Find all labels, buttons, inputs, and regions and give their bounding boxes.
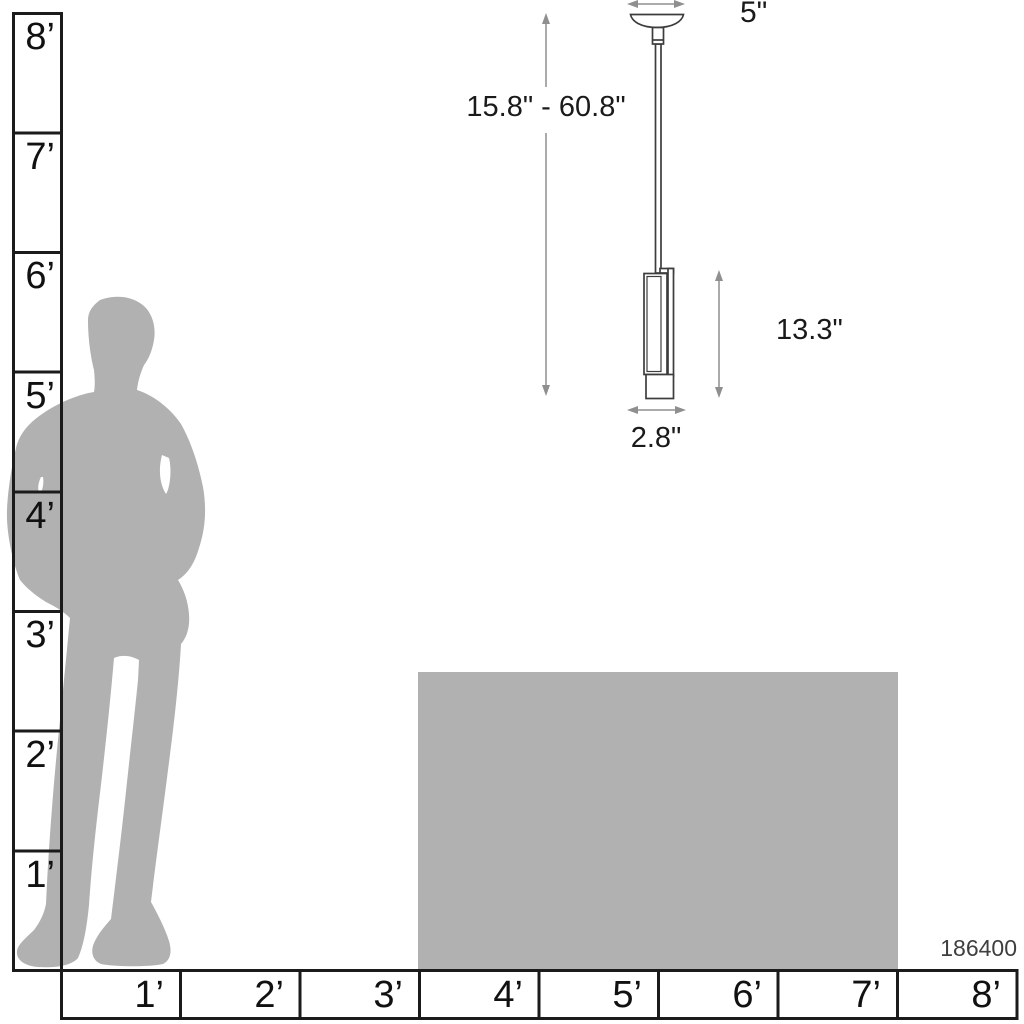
horizontal-ruler-label-6ft: 6’ [659,971,778,1019]
arrowhead [715,387,723,398]
product-model-number: 186400 [897,936,1017,961]
arrowhead [627,0,638,8]
scale-diagram: 8’ 7’ 6’ 5’ 4’ 3’ 2’ 1’ 1’ 2’ 3’ 4’ 5’ 6… [0,0,1024,1024]
pendant-bracket-strip [668,269,674,377]
horizontal-ruler-label-8ft: 8’ [898,971,1017,1019]
height-range-label: 15.8" - 60.8" [426,92,666,124]
dimension-arrows [546,4,719,410]
pendant-rod [656,44,662,273]
pendant-lower-shade [646,375,674,399]
fixture-height-label: 13.3" [776,315,843,347]
vertical-ruler-label-6ft: 6’ [13,257,55,295]
pendant-fixture [631,15,684,399]
horizontal-ruler-label-3ft: 3’ [300,971,419,1019]
pendant-stem [653,28,664,45]
vertical-ruler-label-5ft: 5’ [13,377,55,415]
vertical-ruler-label-2ft: 2’ [13,736,55,774]
horizontal-ruler-label-2ft: 2’ [181,971,300,1019]
horizontal-ruler-label-5ft: 5’ [539,971,658,1019]
fixture-width-label: 2.8" [596,423,716,455]
pendant-canopy [631,15,684,28]
arrowhead [715,270,723,281]
pendant-body-inner [647,277,661,372]
diagram-canvas [0,0,1024,1024]
canopy-width-label: 5" [740,0,767,29]
counter-block [418,672,898,971]
horizontal-ruler-label-7ft: 7’ [778,971,897,1019]
dimension-arrowheads [542,0,723,414]
vertical-ruler-label-3ft: 3’ [13,616,55,654]
arrowhead [674,0,685,8]
vertical-ruler-label-7ft: 7’ [13,138,55,176]
arrowhead [675,406,686,414]
horizontal-ruler-label-4ft: 4’ [420,971,539,1019]
arrowhead [627,406,638,414]
arrowhead [542,385,550,396]
arrowhead [542,13,550,24]
vertical-ruler-label-8ft: 8’ [13,18,55,56]
vertical-ruler-label-4ft: 4’ [13,497,55,535]
horizontal-ruler-label-1ft: 1’ [61,971,180,1019]
vertical-ruler-label-1ft: 1’ [13,856,55,894]
